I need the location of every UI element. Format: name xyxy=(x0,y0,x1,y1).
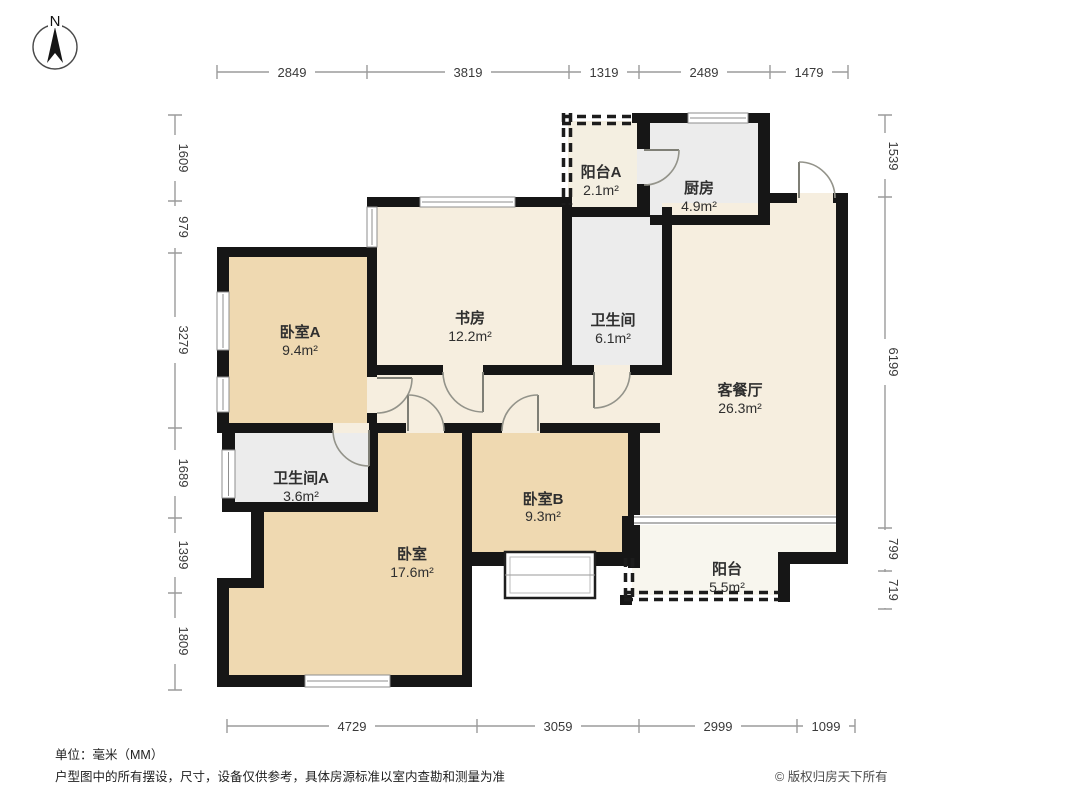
dim-right-2: 6199 xyxy=(886,348,901,377)
label-bedroom: 卧室 xyxy=(397,545,427,563)
dim-top-2: 3819 xyxy=(454,65,483,80)
label-balcony-a: 阳台A xyxy=(581,163,622,181)
dim-top-1: 2849 xyxy=(278,65,307,80)
dim-bottom-4: 1099 xyxy=(812,719,841,734)
dim-right-4: 719 xyxy=(886,579,901,601)
label-bathroom: 卫生间 xyxy=(590,311,635,329)
dim-left-2: 979 xyxy=(176,216,191,238)
dim-left-1: 1609 xyxy=(176,144,191,173)
label-balcony: 阳台 xyxy=(712,560,742,578)
area-study: 12.2m² xyxy=(448,328,492,344)
bay-window xyxy=(505,552,595,598)
floorplan-canvas: N xyxy=(0,0,1066,800)
label-bedroom-a: 卧室A xyxy=(280,323,321,341)
label-bathroom-a: 卫生间A xyxy=(273,469,329,487)
label-study: 书房 xyxy=(455,309,485,327)
label-living-dining: 客餐厅 xyxy=(716,381,762,399)
dim-bottom-3: 2999 xyxy=(704,719,733,734)
dimension-left: 1609 979 3279 1689 1399 1809 xyxy=(168,115,192,690)
area-balcony-a: 2.1m² xyxy=(583,182,619,198)
dim-left-4: 1689 xyxy=(176,459,191,488)
area-kitchen: 4.9m² xyxy=(681,198,717,214)
label-kitchen: 厨房 xyxy=(684,179,714,197)
dimension-right: 1539 6199 799 719 xyxy=(878,115,902,609)
area-bathroom: 6.1m² xyxy=(595,330,631,346)
area-bedroom-a: 9.4m² xyxy=(282,342,318,358)
area-bathroom-a: 3.6m² xyxy=(283,488,319,504)
dim-bottom-2: 3059 xyxy=(544,719,573,734)
copyright-text: © 版权归房天下所有 xyxy=(775,766,888,785)
dim-right-3: 799 xyxy=(886,538,901,560)
dimension-top: 2849 3819 1319 2489 1479 xyxy=(217,65,848,81)
compass-north-label: N xyxy=(50,13,61,30)
unit-note: 单位：毫米（MM） xyxy=(55,744,163,763)
label-bedroom-b: 卧室B xyxy=(523,490,564,508)
compass: N xyxy=(33,13,77,69)
floorplan-svg: N xyxy=(0,0,1066,800)
area-bedroom: 17.6m² xyxy=(390,564,434,580)
dim-left-3: 3279 xyxy=(176,326,191,355)
area-bedroom-b: 9.3m² xyxy=(525,508,561,524)
dim-left-6: 1809 xyxy=(176,627,191,656)
door-entry xyxy=(799,162,835,198)
dim-top-4: 2489 xyxy=(690,65,719,80)
dim-top-3: 1319 xyxy=(590,65,619,80)
area-balcony: 5.5m² xyxy=(709,579,745,595)
dim-bottom-1: 4729 xyxy=(338,719,367,734)
dim-left-5: 1399 xyxy=(176,541,191,570)
area-living-dining: 26.3m² xyxy=(718,400,762,416)
room-fill-living-main xyxy=(662,203,836,516)
dim-right-1: 1539 xyxy=(886,142,901,171)
disclaimer-text: 户型图中的所有摆设，尺寸，设备仅供参考，具体房源标准以室内查勘和测量为准 xyxy=(55,766,505,785)
dimension-bottom: 4729 3059 2999 1099 xyxy=(227,719,855,735)
sliding-door-balcony xyxy=(634,515,836,525)
dim-top-5: 1479 xyxy=(795,65,824,80)
